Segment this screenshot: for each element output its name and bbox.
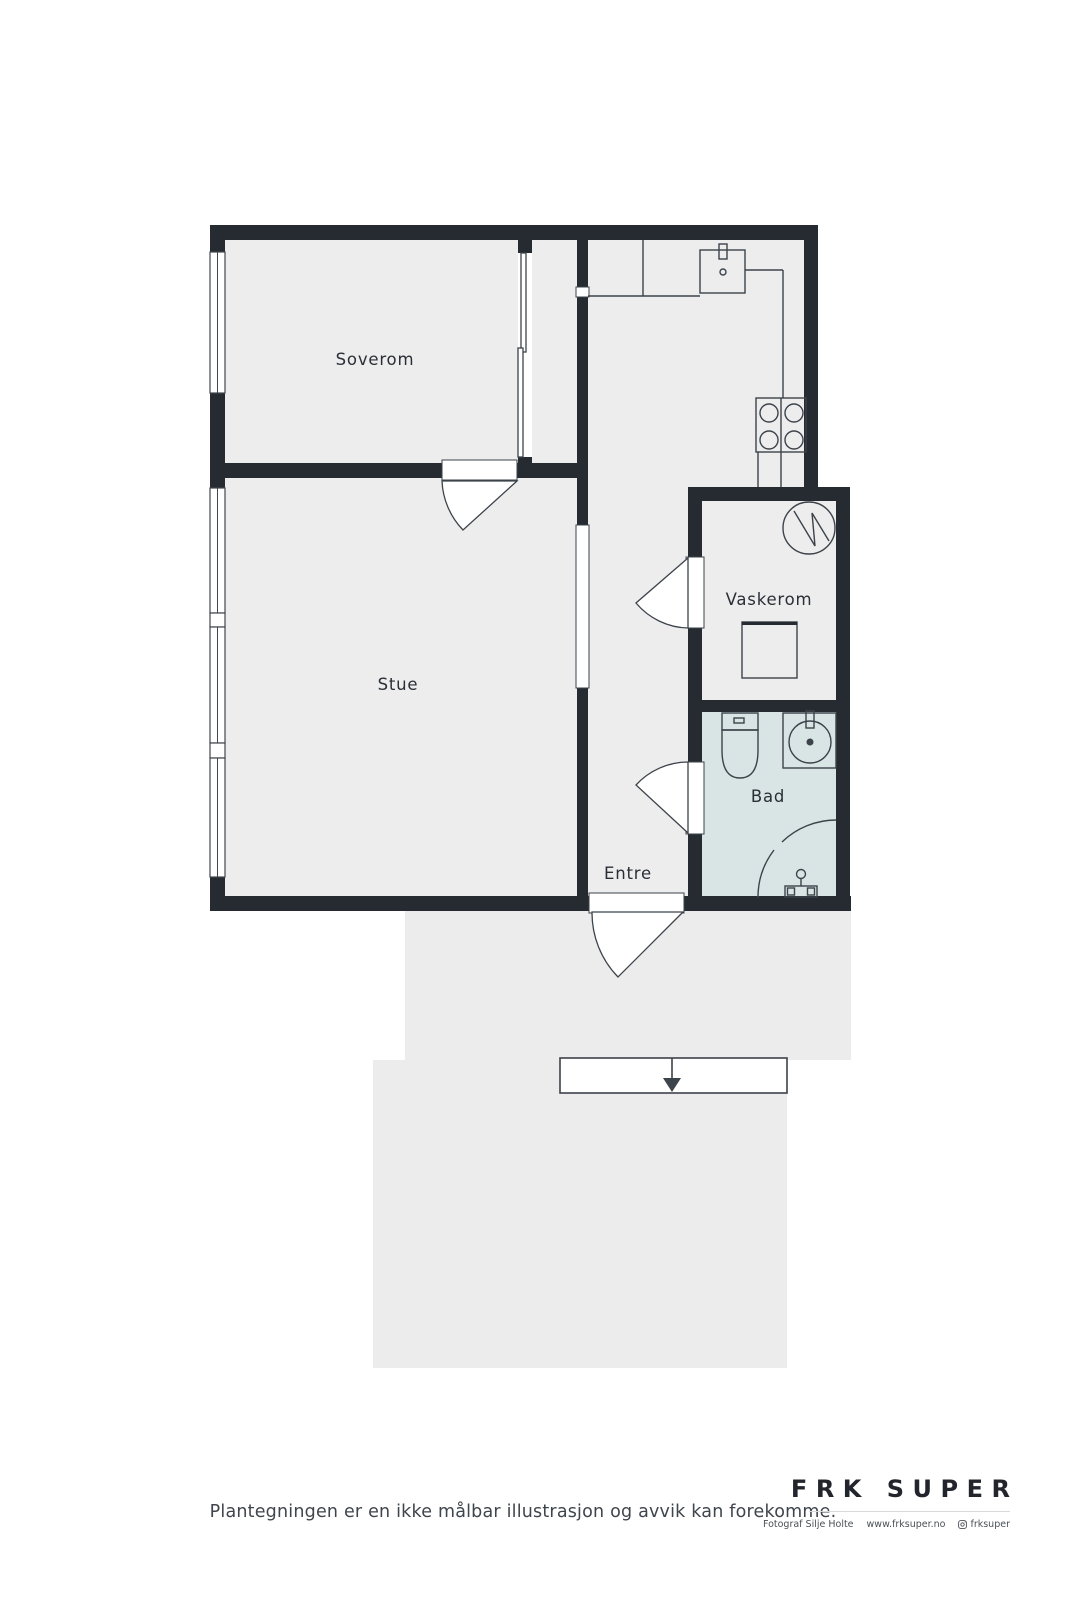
room-label-vaskerom: Vaskerom [726,590,813,609]
counter-notch [576,287,589,297]
window [210,627,225,743]
entrance-threshold [589,893,684,913]
credit-website: www.frksuper.no [867,1519,946,1530]
logo-divider [809,1511,1010,1512]
room-label-bad: Bad [751,787,785,806]
window [210,758,225,877]
credit-instagram-handle: frksuper [970,1519,1010,1530]
instagram-icon [958,1520,967,1529]
logo-text: FRK SUPER [790,1475,1019,1503]
entrance-arrow-icon [560,1058,787,1093]
credits-row: Fotograf Silje Holte www.frksuper.no frk… [790,1519,1010,1530]
credit-photographer: Fotograf Silje Holte [763,1519,854,1530]
bad-door-threshold [686,762,704,834]
exterior-area [373,911,851,1368]
window [210,252,225,393]
room-floors [225,240,836,896]
vaskerom-door-threshold [686,557,704,628]
credit-instagram: frksuper [958,1519,1010,1530]
window-mullion [210,613,225,627]
branding-block: FRK SUPER Fotograf Silje Holte www.frksu… [790,1475,1010,1530]
room-label-entre: Entre [604,864,652,883]
floorplan-page: { "floorplan": { "rooms": [ {"id": "sove… [0,0,1067,1600]
closet-nook-floor [532,240,577,463]
room-label-stue: Stue [378,675,419,694]
stue-entre-opening [576,525,589,688]
window [210,488,225,613]
windows [210,252,225,877]
window-mullion [210,743,225,758]
floorplan-drawing: Soverom Stue Vaskerom Bad Entre [0,0,1067,1600]
sliding-door [518,253,526,457]
soverom-door-threshold [442,460,517,480]
room-label-soverom: Soverom [336,350,415,369]
